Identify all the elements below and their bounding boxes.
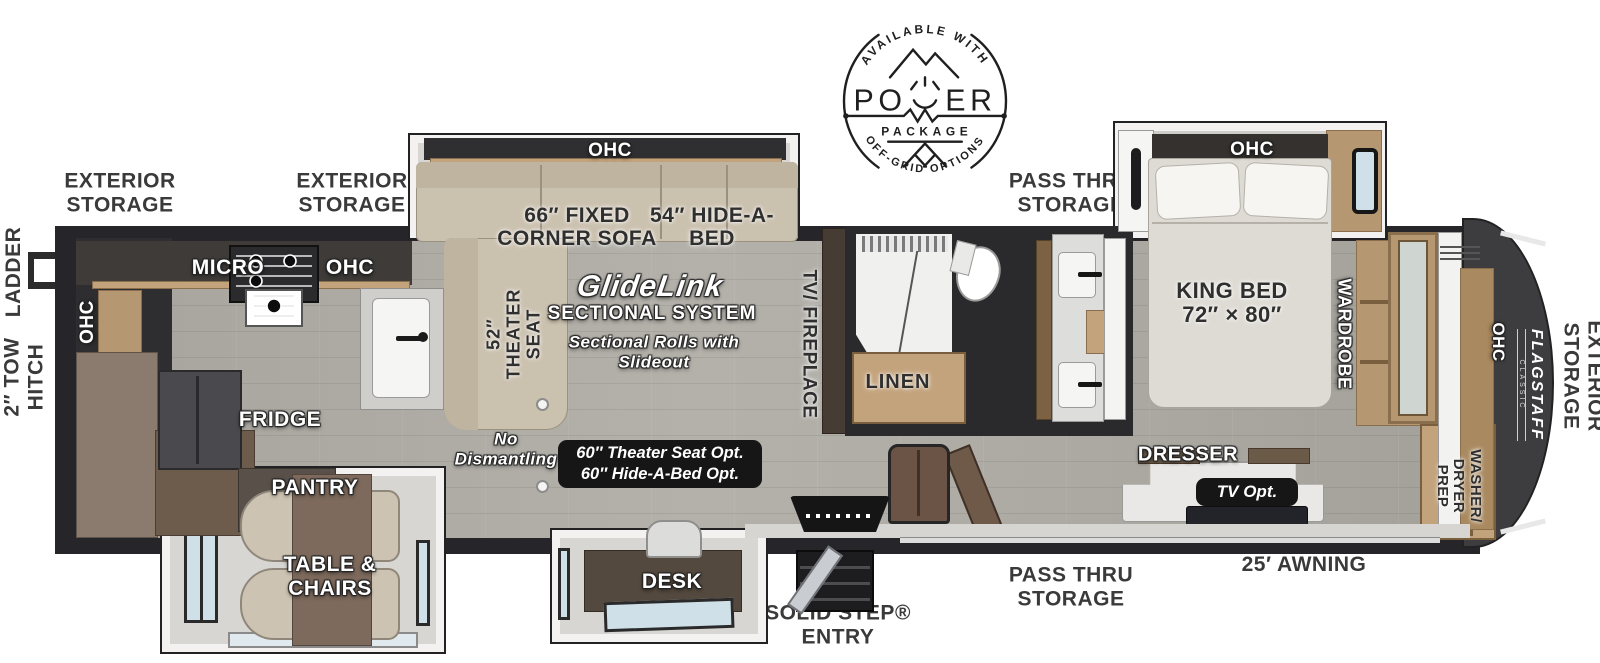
- sofa-backrest: [416, 162, 798, 188]
- vanity-faucet-2: [1078, 382, 1102, 387]
- label-sectional-note: Sectional Rolls with Slideout: [569, 332, 740, 371]
- rear-wall: [55, 226, 76, 554]
- front-vent-line-3: [1440, 258, 1480, 260]
- badge-power-right: ER: [945, 84, 996, 117]
- nightstand-left-door-slot: [1131, 148, 1141, 210]
- kitchen-faucet-base: [418, 332, 428, 342]
- theater-seat-back: [444, 238, 478, 430]
- ladder-icon-rail: [28, 252, 34, 289]
- medicine-cabinet: [1104, 238, 1126, 420]
- vanity-faucet-1: [1078, 272, 1102, 277]
- bedroom-window: [1352, 148, 1378, 214]
- fridge-box: [158, 370, 242, 470]
- label-tow-hitch: 2″ TOW HITCH: [0, 337, 47, 416]
- label-corner-sofa: 66″ FIXED CORNER SOFA: [497, 204, 657, 250]
- label-tv-fireplace: TV/ FIREPLACE: [798, 269, 819, 418]
- badge-available-with: AVAILABLE WITH: [858, 22, 993, 68]
- cupholder-icon-1: [536, 398, 549, 411]
- badge-power-left: PO: [854, 84, 907, 117]
- floorplan-canvas: AVAILABLE WITH OFF-GRID OPTIONS PO ER PA…: [0, 0, 1600, 663]
- label-linen: LINEN: [866, 371, 931, 393]
- label-awning: 25′ AWNING: [1242, 553, 1367, 577]
- label-exterior-storage-front: EXTERIOR STORAGE: [1559, 320, 1600, 431]
- dinette-right-window: [416, 540, 430, 626]
- power-package-badge: AVAILABLE WITH OFF-GRID OPTIONS PO ER PA…: [833, 8, 1017, 200]
- label-desk: DESK: [642, 570, 702, 594]
- tv-icon: [1186, 506, 1308, 526]
- label-ohc-rear: OHC: [77, 300, 99, 344]
- shower-head-grate: [862, 236, 948, 252]
- bed-fold-line: [1152, 222, 1328, 224]
- vanity-tall-cabinet: [1036, 240, 1052, 420]
- mountains-icon: [890, 50, 958, 78]
- front-vent-line-1: [1440, 246, 1480, 248]
- rear-wardrobe-slab: [76, 352, 158, 538]
- pillow-left: [1155, 162, 1242, 220]
- flagstaff-logo: FLAGSTAFF CLASSIC: [1517, 329, 1545, 441]
- label-hide-a-bed: 54″ HIDE-A- BED: [650, 204, 774, 250]
- options-badge: 60″ Theater Seat Opt. 60″ Hide-A-Bed Opt…: [558, 440, 762, 488]
- svg-text:AVAILABLE WITH: AVAILABLE WITH: [858, 22, 993, 68]
- tv-opt-badge: TV Opt.: [1196, 478, 1298, 506]
- badge-dot-right: [1001, 113, 1007, 119]
- label-sectional-system: SECTIONAL SYSTEM: [548, 303, 757, 325]
- badge-offgrid-options: OFF-GRID OPTIONS: [863, 134, 988, 176]
- label-micro: MICRO: [192, 256, 265, 280]
- label-ohc-kitchen: OHC: [326, 256, 374, 280]
- front-closet-glass: [1398, 240, 1428, 416]
- label-ohc-living: OHC: [588, 140, 632, 162]
- glidelink-logo: GlideLink: [575, 270, 726, 305]
- label-washer-dryer-prep: WASHER/ DRYER PREP: [1433, 449, 1483, 523]
- sun-icon: [911, 77, 939, 107]
- label-exterior-storage-rear-1: EXTERIOR STORAGE: [64, 169, 175, 216]
- fridge-door-split: [196, 376, 199, 464]
- griddle-dots: [806, 514, 874, 518]
- label-theater-seat: 52″ THEATER SEAT: [484, 289, 543, 380]
- label-dresser: DRESSER: [1138, 444, 1238, 467]
- awning-roller: [900, 537, 1440, 543]
- label-pass-thru-storage-bottom: PASS THRU STORAGE: [1009, 563, 1133, 610]
- badge-dot-left: [843, 113, 849, 119]
- desk-side-window: [558, 548, 570, 620]
- desk-chair-2: [646, 520, 702, 558]
- desk-chair-split: [917, 450, 920, 516]
- flagstaff-brand: FLAGSTAFF: [1527, 329, 1545, 441]
- label-ohc-bedroom: OHC: [1230, 139, 1274, 161]
- label-table-chairs: TABLE & CHAIRS: [284, 553, 377, 601]
- label-fridge: FRIDGE: [239, 408, 321, 432]
- flagstaff-classic: CLASSIC: [1517, 329, 1526, 441]
- label-ohc-front: OHC: [1488, 322, 1508, 361]
- front-vent-line-2: [1440, 252, 1480, 254]
- cupholder-icon-2: [536, 480, 549, 493]
- label-wardrobe: WARDROBE: [1334, 279, 1355, 390]
- svg-text:OFF-GRID OPTIONS: OFF-GRID OPTIONS: [863, 134, 988, 176]
- desk-window: [604, 598, 735, 633]
- label-pantry: PANTRY: [272, 476, 359, 500]
- label-no-dismantling: No Dismantling: [455, 429, 558, 468]
- label-exterior-storage-rear-2: EXTERIOR STORAGE: [296, 169, 407, 216]
- label-ladder: LADDER: [2, 227, 26, 318]
- badge-package: PACKAGE: [881, 124, 972, 138]
- pillow-right: [1243, 162, 1330, 220]
- label-king-bed: KING BED 72″ × 80″: [1176, 279, 1288, 327]
- kitchen-sink: [372, 298, 430, 398]
- dresser-wood-top-right: [1248, 448, 1310, 464]
